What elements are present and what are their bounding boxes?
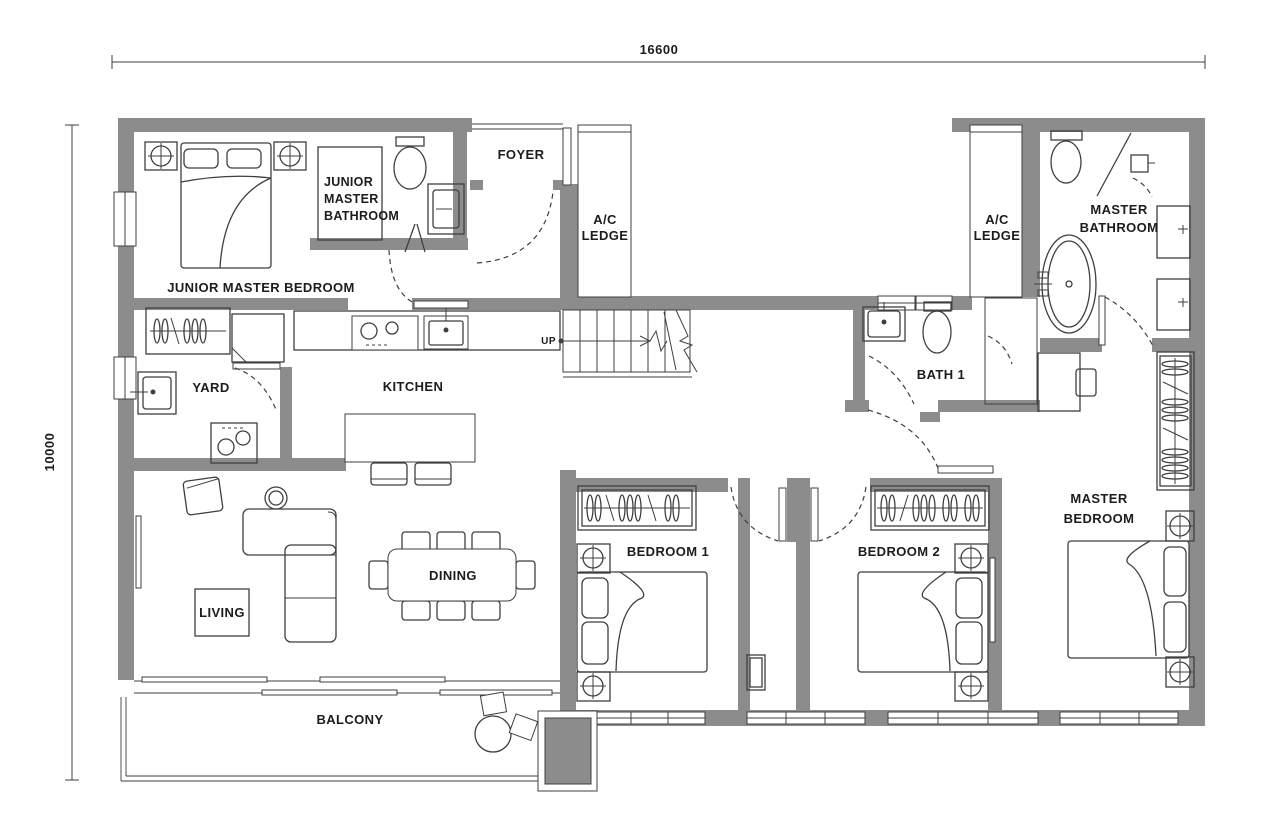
toilet xyxy=(394,137,426,189)
door-swing-arc xyxy=(1105,297,1153,346)
sofa xyxy=(243,509,336,642)
vanity-sink xyxy=(428,184,464,234)
armchair xyxy=(183,477,223,516)
wall-segment xyxy=(920,412,940,422)
nightstand-lamp xyxy=(145,142,177,170)
room-label-master-bathroom: MASTER xyxy=(1090,202,1148,217)
nightstand-lamp xyxy=(955,544,988,573)
room-label-bedroom1: BEDROOM 1 xyxy=(627,544,709,559)
room-label-ac-ledge-left-2: LEDGE xyxy=(582,228,629,243)
nightstand-lamp xyxy=(955,672,988,701)
walls xyxy=(118,118,1205,726)
side-table xyxy=(265,487,287,509)
window-living-west xyxy=(136,516,141,588)
room-label-kitchen: KITCHEN xyxy=(383,379,444,394)
sliding-door-living xyxy=(134,677,560,695)
room-label-dining: DINING xyxy=(429,568,477,583)
bath1-door-leaf xyxy=(938,466,993,473)
entrance-door-leaf xyxy=(563,128,571,185)
shower-swing-arc xyxy=(1133,178,1152,197)
top-dimension-line xyxy=(112,55,1205,69)
window-left-yard xyxy=(114,357,136,399)
yard-cabinet xyxy=(232,314,284,362)
wall-segment xyxy=(560,184,578,298)
room-label-ac-ledge-left: A/C xyxy=(593,212,617,227)
master-bed xyxy=(1068,541,1189,658)
master-wardrobe xyxy=(1157,352,1194,490)
yard-door-leaf xyxy=(233,363,280,369)
room-label-junior-master-bathroom-3: BATHROOM xyxy=(324,209,399,223)
stair-direction-arrow xyxy=(559,331,667,351)
room-label-living: LIVING xyxy=(199,605,245,620)
yard-sink xyxy=(130,372,176,414)
wall-segment xyxy=(134,458,346,471)
room-label-junior-master-bedroom: JUNIOR MASTER BEDROOM xyxy=(167,280,355,295)
corridor-desk xyxy=(747,655,765,690)
wall-segment xyxy=(845,400,869,412)
room-label-balcony: BALCONY xyxy=(316,712,383,727)
kitchen-hob xyxy=(352,316,418,350)
wall-segment xyxy=(738,478,750,726)
room-label-foyer: FOYER xyxy=(498,147,545,162)
chair xyxy=(509,714,537,741)
door-swing-arc xyxy=(819,487,866,541)
room-label-yard: YARD xyxy=(192,380,229,395)
nightstand-lamp xyxy=(274,142,306,170)
mirror-panel xyxy=(990,558,995,642)
room-label-bath1: BATH 1 xyxy=(917,367,965,382)
master-bath-door-leaf xyxy=(1099,296,1105,345)
kitchen-sink xyxy=(424,308,468,349)
ledges xyxy=(472,124,1022,297)
door-swing-arc xyxy=(235,368,277,412)
bedroom2-door-leaf xyxy=(811,488,818,541)
dimension-height-label: 10000 xyxy=(42,433,57,472)
junior-master-bed xyxy=(181,143,271,268)
wall-segment xyxy=(280,367,292,467)
bath1-shower xyxy=(985,298,1037,404)
bedroom2-wardrobe xyxy=(871,486,989,530)
floor-plan-page: 16600 10000 FOYER A/C LEDGE A/C LEDGE MA… xyxy=(0,0,1273,836)
master-toilet xyxy=(1051,131,1082,183)
window-bedroom1-bottom xyxy=(593,712,705,724)
nightstand-lamp xyxy=(577,544,610,573)
stairs-up-label: UP xyxy=(541,336,556,347)
window-corridor-bottom xyxy=(747,712,865,724)
wall-segment xyxy=(1040,338,1102,352)
wall-segment xyxy=(453,125,467,250)
master-vanity xyxy=(1157,206,1190,330)
bedroom1-wardrobe xyxy=(578,486,696,530)
room-label-master-bedroom-2: BEDROOM xyxy=(1064,511,1135,526)
balcony-railing xyxy=(121,697,540,783)
window-bath1-top xyxy=(878,296,952,310)
dimension-width-label: 16600 xyxy=(640,42,679,57)
nightstand-lamp xyxy=(577,672,610,701)
balcony-structure xyxy=(121,692,597,791)
wall-segment xyxy=(1152,338,1189,352)
ac-ledge-left-box xyxy=(578,125,631,297)
floor-plan: 16600 10000 FOYER A/C LEDGE A/C LEDGE MA… xyxy=(0,0,1273,836)
room-label-master-bathroom-2: BATHROOM xyxy=(1080,220,1159,235)
balcony-table-set xyxy=(475,692,538,752)
room-label-junior-master-bathroom-2: MASTER xyxy=(324,192,379,206)
ac-ledge-right-box xyxy=(970,125,1022,297)
wall-segment xyxy=(118,118,472,132)
stairs xyxy=(559,310,697,377)
door-jamb xyxy=(470,180,483,190)
room-label-master-bedroom: MASTER xyxy=(1070,491,1128,506)
stair-break-line xyxy=(664,310,697,372)
room-label-bedroom2: BEDROOM 2 xyxy=(858,544,940,559)
wall-segment xyxy=(787,478,810,542)
window-master-bottom xyxy=(1060,712,1178,724)
entrance-threshold xyxy=(472,124,563,129)
yard-stove xyxy=(211,423,257,463)
kitchen-island xyxy=(345,414,475,485)
left-dimension-line xyxy=(65,125,79,780)
room-label-junior-master-bathroom: JUNIOR xyxy=(324,175,373,189)
room-label-ac-ledge-right-2: LEDGE xyxy=(974,228,1021,243)
bedroom1-bed xyxy=(577,572,707,672)
room-label-ac-ledge-right: A/C xyxy=(985,212,1009,227)
window-left-bedroom xyxy=(114,192,136,246)
wall-segment xyxy=(1022,125,1040,297)
master-desk xyxy=(1038,353,1096,411)
master-shower xyxy=(1097,133,1155,196)
hall-door-leaf xyxy=(414,301,468,308)
window-bedroom2-bottom xyxy=(888,712,1038,724)
chair xyxy=(480,692,506,716)
bathtub xyxy=(1034,235,1096,333)
wall-segment xyxy=(560,470,576,726)
shower-swing-arc xyxy=(988,336,1012,364)
door-swing-arc xyxy=(389,250,414,303)
wall-segment xyxy=(796,542,810,726)
planter-box xyxy=(538,711,597,791)
bedroom1-door-leaf xyxy=(779,488,786,541)
bedroom2-bed xyxy=(858,572,988,672)
drying-rack xyxy=(146,308,230,354)
wall-segment xyxy=(950,296,972,310)
door-swing-arc xyxy=(477,192,553,263)
wall-segment xyxy=(560,296,878,310)
round-table xyxy=(475,716,511,752)
door-swing-arc xyxy=(869,356,914,404)
